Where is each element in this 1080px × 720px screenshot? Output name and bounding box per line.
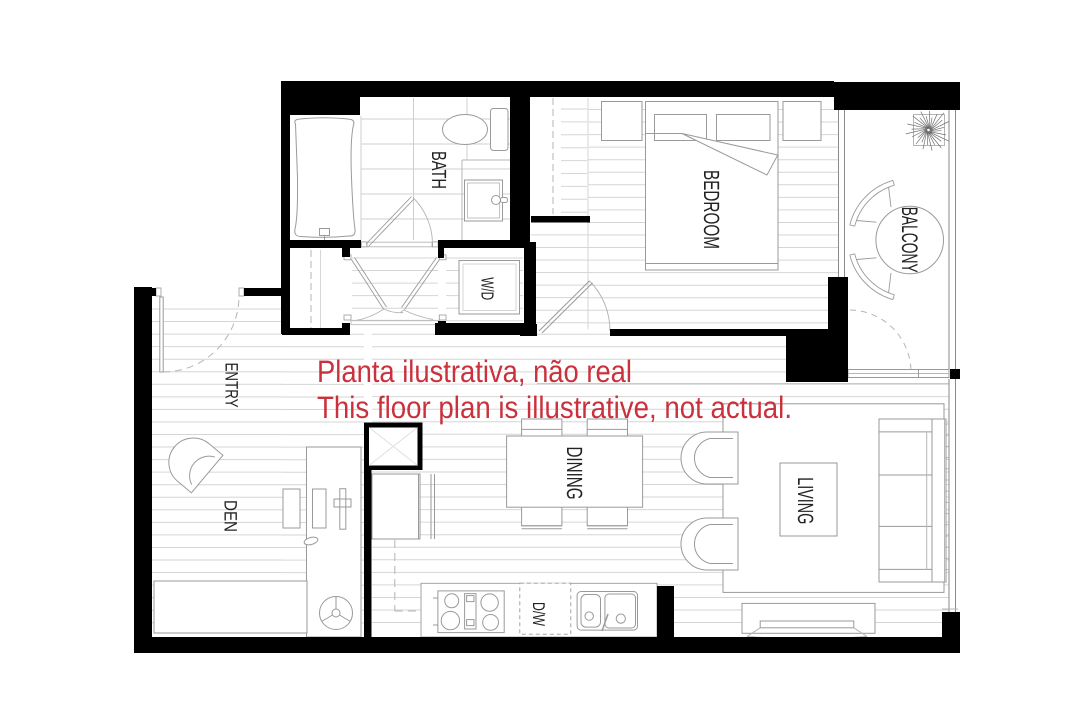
svg-text:BATH: BATH	[427, 151, 450, 189]
svg-text:This floor plan is illustrativ: This floor plan is illustrative, not act…	[317, 390, 792, 425]
svg-text:DINING: DINING	[562, 447, 587, 500]
svg-text:ENTRY: ENTRY	[222, 363, 242, 408]
svg-text:BALCONY: BALCONY	[897, 207, 922, 273]
svg-text:D/W: D/W	[529, 602, 548, 626]
svg-text:Planta ilustrativa, não real: Planta ilustrativa, não real	[317, 354, 632, 389]
svg-text:W/D: W/D	[478, 277, 498, 300]
svg-text:LIVING: LIVING	[793, 477, 818, 524]
svg-text:DEN: DEN	[220, 500, 240, 532]
svg-text:BEDROOM: BEDROOM	[699, 170, 724, 249]
